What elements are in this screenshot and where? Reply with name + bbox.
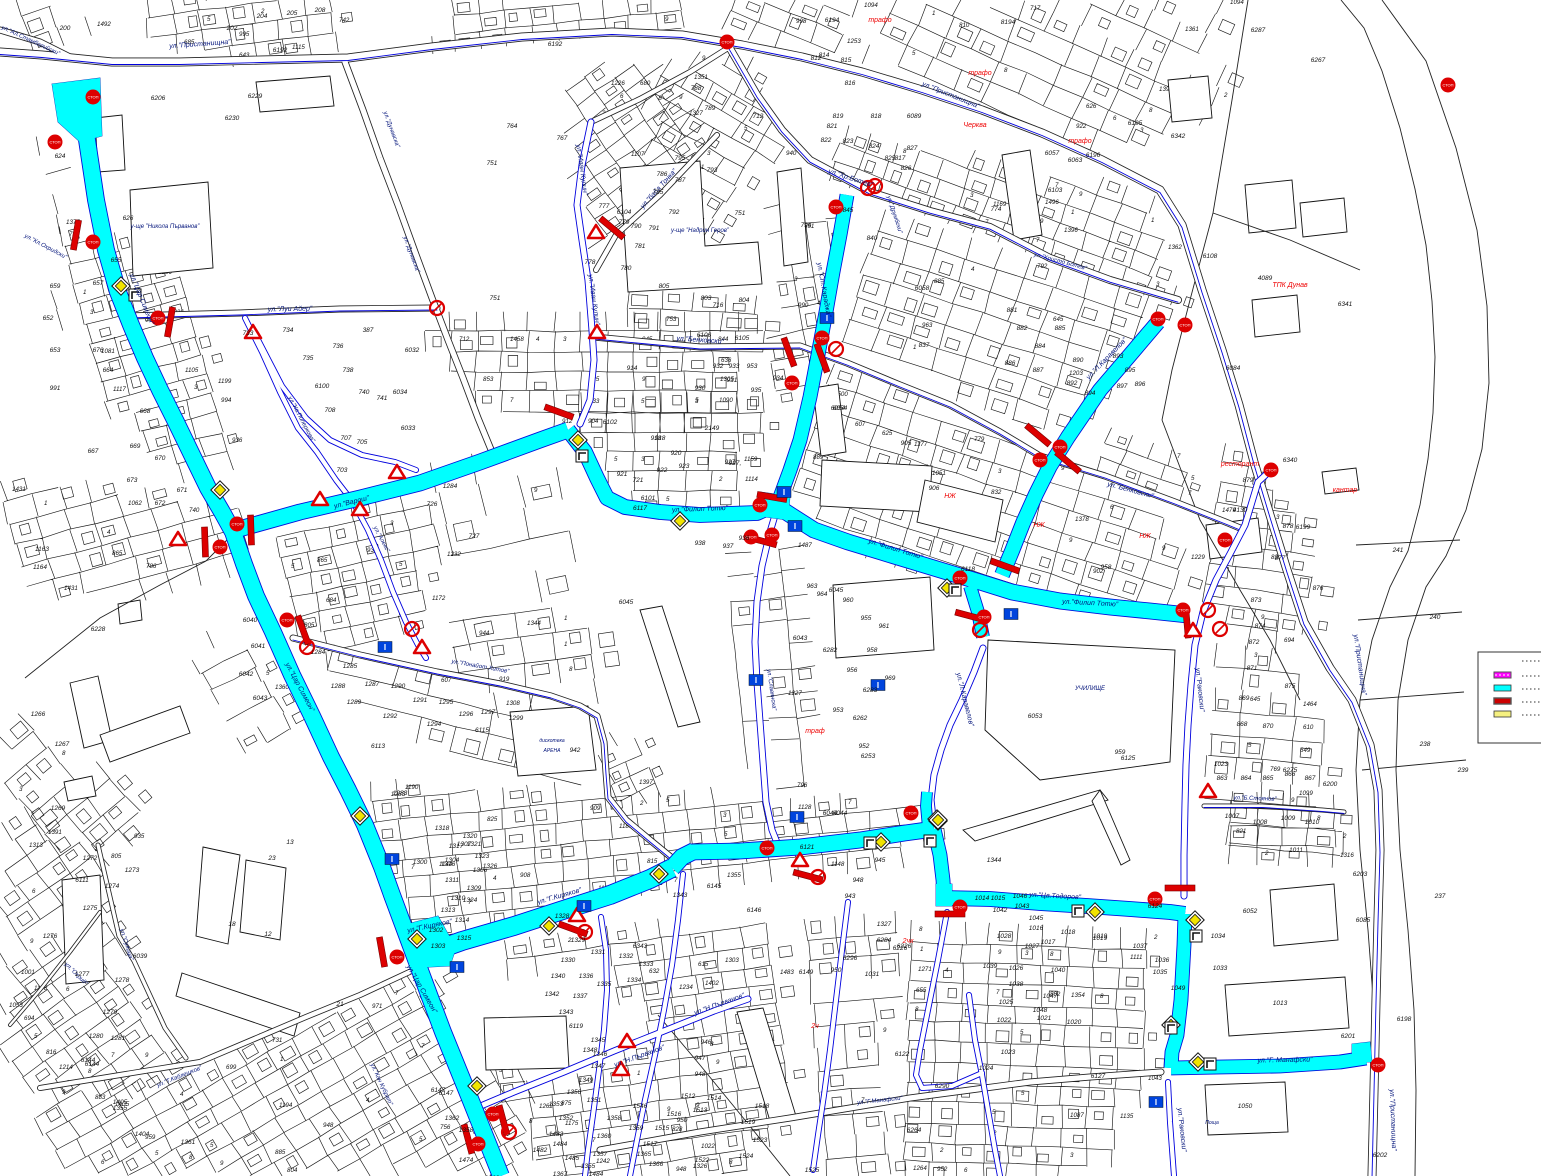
svg-text:741: 741 — [377, 395, 388, 402]
svg-text:3: 3 — [1276, 514, 1280, 521]
svg-text:879: 879 — [1243, 477, 1254, 484]
svg-text:5: 5 — [724, 831, 728, 838]
svg-text:1485: 1485 — [565, 1155, 580, 1162]
svg-text:1025: 1025 — [999, 999, 1014, 1006]
svg-text:1: 1 — [1151, 217, 1154, 224]
svg-text:1284: 1284 — [311, 649, 326, 656]
svg-text:874: 874 — [1255, 623, 1266, 630]
svg-text:1229: 1229 — [1191, 554, 1205, 561]
svg-text:653: 653 — [50, 347, 61, 354]
svg-text:738: 738 — [343, 367, 354, 374]
svg-text:1269: 1269 — [51, 805, 66, 812]
svg-text:СТОП: СТОП — [1442, 83, 1453, 88]
svg-text:673: 673 — [127, 477, 138, 484]
svg-text:СТОП: СТОП — [1152, 317, 1163, 322]
svg-text:1308: 1308 — [506, 700, 520, 707]
svg-text:1039: 1039 — [983, 963, 998, 970]
svg-text:1276: 1276 — [43, 933, 58, 940]
svg-text:923: 923 — [679, 463, 690, 470]
svg-text:дискотека: дискотека — [539, 738, 564, 744]
svg-text:930: 930 — [695, 385, 706, 392]
svg-text:1362: 1362 — [445, 1115, 460, 1122]
svg-text:699: 699 — [226, 1064, 237, 1071]
svg-text:934: 934 — [773, 375, 784, 382]
svg-text:796: 796 — [797, 782, 808, 789]
svg-text:8: 8 — [62, 750, 66, 757]
svg-text:751: 751 — [735, 210, 746, 217]
svg-text:1053: 1053 — [9, 1002, 23, 1009]
svg-text:8: 8 — [1004, 67, 1008, 74]
svg-text:886: 886 — [1005, 360, 1016, 367]
svg-text:1099: 1099 — [1299, 790, 1313, 797]
svg-text:5: 5 — [291, 563, 295, 570]
svg-text:387: 387 — [363, 327, 374, 334]
svg-text:5: 5 — [207, 16, 211, 23]
svg-text:817: 817 — [895, 155, 906, 162]
svg-text:8: 8 — [658, 95, 662, 102]
svg-text:1431: 1431 — [12, 486, 26, 493]
svg-text:1353: 1353 — [549, 1101, 564, 1108]
svg-text:6053: 6053 — [1028, 713, 1043, 720]
svg-text:СТОП: СТОП — [1149, 897, 1160, 902]
svg-text:1046: 1046 — [1013, 893, 1028, 900]
svg-text:6063: 6063 — [1068, 157, 1083, 164]
svg-text:6122: 6122 — [895, 1051, 910, 1058]
svg-text:1484: 1484 — [553, 1141, 568, 1148]
svg-text:774: 774 — [991, 206, 1002, 213]
svg-text:5: 5 — [666, 496, 670, 503]
svg-text:3: 3 — [641, 456, 645, 463]
svg-text:6104: 6104 — [617, 209, 632, 216]
svg-text:963: 963 — [922, 322, 933, 329]
svg-text:3: 3 — [194, 384, 198, 391]
svg-text:8: 8 — [529, 1118, 533, 1125]
svg-text:906: 906 — [929, 485, 940, 492]
svg-text:837: 837 — [919, 342, 930, 349]
svg-text:1242: 1242 — [596, 1158, 610, 1165]
svg-text:959: 959 — [1115, 749, 1126, 756]
svg-text:200: 200 — [59, 25, 71, 32]
svg-text:938: 938 — [695, 540, 706, 547]
svg-text:1327: 1327 — [689, 110, 703, 117]
svg-text:6296: 6296 — [843, 955, 858, 962]
svg-text:667: 667 — [88, 448, 99, 455]
svg-text:4130: 4130 — [1233, 507, 1248, 514]
svg-text:1361: 1361 — [1185, 26, 1199, 33]
svg-text:1311: 1311 — [445, 877, 459, 884]
svg-text:1367: 1367 — [553, 1171, 568, 1176]
svg-text:655: 655 — [111, 257, 122, 264]
svg-text:СТОП: СТОП — [49, 140, 60, 145]
svg-text:6085: 6085 — [1356, 917, 1371, 924]
svg-text:1431: 1431 — [64, 585, 78, 592]
svg-text:3: 3 — [970, 192, 974, 199]
svg-text:892: 892 — [1067, 380, 1078, 387]
svg-text:1135: 1135 — [1120, 1113, 1134, 1120]
svg-text:779: 779 — [619, 219, 630, 226]
svg-text:1340: 1340 — [551, 973, 566, 980]
svg-text:6057: 6057 — [1045, 150, 1060, 157]
svg-text:875: 875 — [1285, 683, 1296, 690]
svg-text:931: 931 — [727, 377, 738, 384]
svg-text:1281: 1281 — [111, 1035, 126, 1042]
svg-text:740: 740 — [359, 389, 370, 396]
svg-text:918: 918 — [651, 435, 662, 442]
svg-text:1051: 1051 — [932, 470, 946, 477]
svg-text:961: 961 — [879, 623, 890, 630]
svg-text:1294: 1294 — [427, 721, 442, 728]
svg-text:866: 866 — [1285, 771, 1296, 778]
svg-text:703: 703 — [337, 467, 348, 474]
svg-text:СТОП: СТОП — [87, 240, 98, 245]
svg-text:5: 5 — [641, 398, 645, 405]
svg-text:1397: 1397 — [639, 779, 653, 786]
svg-text:23: 23 — [267, 855, 276, 862]
svg-text:883: 883 — [95, 1094, 106, 1101]
svg-text:694: 694 — [24, 1015, 35, 1022]
svg-text:6089: 6089 — [907, 113, 922, 120]
svg-text:5: 5 — [1020, 1029, 1024, 1036]
svg-text:6034: 6034 — [393, 389, 408, 396]
svg-text:1313: 1313 — [441, 907, 456, 914]
svg-text:792: 792 — [669, 209, 680, 216]
svg-text:4: 4 — [107, 529, 111, 536]
svg-text:2: 2 — [718, 476, 723, 483]
svg-text:1024: 1024 — [979, 1065, 994, 1072]
svg-text:1280: 1280 — [89, 1033, 104, 1040]
svg-text:877: 877 — [1275, 555, 1286, 562]
svg-text:927: 927 — [725, 459, 736, 466]
svg-text:8194: 8194 — [1001, 19, 1016, 26]
svg-text:238: 238 — [1419, 741, 1431, 748]
svg-text:1107: 1107 — [631, 151, 645, 158]
svg-text:6145: 6145 — [707, 883, 722, 890]
svg-text:897: 897 — [1117, 383, 1128, 390]
svg-text:816: 816 — [46, 1049, 57, 1056]
svg-text:803: 803 — [701, 295, 712, 302]
svg-text:трафо: трафо — [1068, 138, 1091, 145]
svg-text:12: 12 — [264, 931, 272, 938]
svg-text:1015: 1015 — [991, 895, 1006, 902]
svg-text:1519: 1519 — [741, 1119, 756, 1126]
svg-text:1366: 1366 — [649, 1161, 664, 1168]
svg-text:СТОП: СТОП — [754, 503, 765, 508]
svg-text:998: 998 — [796, 18, 807, 25]
svg-text:1: 1 — [1071, 209, 1074, 216]
svg-text:1458: 1458 — [510, 336, 524, 343]
svg-text:I: I — [1155, 1098, 1157, 1107]
svg-text:1355: 1355 — [727, 872, 741, 879]
svg-text:9: 9 — [998, 949, 1002, 956]
svg-text:6054: 6054 — [833, 405, 848, 412]
svg-text:742: 742 — [339, 17, 350, 24]
svg-text:958: 958 — [1101, 564, 1112, 571]
svg-text:6264: 6264 — [907, 1127, 922, 1134]
svg-text:712: 712 — [753, 113, 764, 120]
svg-text:у-ще ”Никола Първанов”: у-ще ”Никола Първанов” — [130, 224, 201, 230]
svg-text:СТОП: СТОП — [786, 381, 797, 386]
svg-text:1018: 1018 — [1061, 929, 1076, 936]
svg-text:1515: 1515 — [655, 1125, 670, 1132]
svg-text:1047: 1047 — [1043, 993, 1058, 1000]
svg-text:6194: 6194 — [825, 17, 840, 24]
svg-text:1484: 1484 — [589, 1171, 604, 1176]
svg-text:1365: 1365 — [637, 1151, 652, 1158]
svg-text:7: 7 — [510, 397, 514, 404]
svg-text:936: 936 — [232, 437, 243, 444]
svg-text:1359: 1359 — [629, 1125, 644, 1132]
svg-text:5: 5 — [155, 1150, 159, 1157]
svg-text:5: 5 — [1021, 1090, 1025, 1097]
svg-text:1087: 1087 — [1070, 1112, 1084, 1119]
svg-text:944: 944 — [479, 630, 490, 637]
svg-text:1318: 1318 — [435, 825, 450, 832]
svg-text:712: 712 — [459, 336, 470, 343]
svg-text:1273: 1273 — [125, 867, 140, 874]
svg-text:1048: 1048 — [1033, 1007, 1048, 1014]
svg-text:684: 684 — [326, 597, 337, 604]
svg-text:8: 8 — [1100, 993, 1104, 1000]
svg-text:905: 905 — [901, 440, 912, 447]
svg-text:I: I — [384, 643, 386, 652]
svg-text:778: 778 — [585, 259, 596, 266]
svg-text:731: 731 — [272, 1037, 282, 1044]
svg-text:6342: 6342 — [1171, 133, 1186, 140]
svg-text:Черква: Черква — [963, 122, 986, 129]
svg-text:6203: 6203 — [1353, 871, 1368, 878]
svg-text:8: 8 — [919, 926, 923, 933]
svg-text:734: 734 — [283, 327, 294, 334]
svg-text:659: 659 — [50, 283, 61, 290]
svg-text:1404: 1404 — [135, 1131, 150, 1138]
svg-text:СТОП: СТОП — [766, 533, 777, 538]
svg-text:1164: 1164 — [33, 564, 47, 571]
svg-text:5: 5 — [210, 1142, 214, 1149]
svg-text:716: 716 — [713, 302, 724, 309]
svg-text:I: I — [391, 855, 393, 864]
svg-text:1315: 1315 — [457, 935, 472, 942]
svg-text:814: 814 — [819, 52, 830, 59]
svg-text:878: 878 — [1283, 523, 1294, 530]
svg-text:21: 21 — [335, 1001, 344, 1008]
svg-text:1343: 1343 — [673, 892, 688, 899]
svg-text:1267: 1267 — [55, 741, 70, 748]
svg-text:885: 885 — [934, 278, 945, 285]
svg-text:1232: 1232 — [447, 551, 461, 558]
svg-text:694: 694 — [1284, 637, 1295, 644]
svg-text:1329: 1329 — [571, 937, 586, 944]
svg-text:6042: 6042 — [239, 671, 254, 678]
svg-text:6192: 6192 — [273, 47, 288, 54]
svg-text:4089: 4089 — [1258, 275, 1273, 282]
svg-text:9: 9 — [1162, 545, 1166, 552]
svg-text:881: 881 — [1007, 307, 1018, 314]
svg-text:777: 777 — [599, 203, 610, 210]
svg-text:6: 6 — [964, 1167, 968, 1174]
svg-text:6105: 6105 — [735, 335, 750, 342]
svg-text:I: I — [1010, 610, 1012, 619]
svg-text:751: 751 — [487, 160, 498, 167]
svg-text:1177: 1177 — [914, 441, 928, 448]
svg-text:6119: 6119 — [569, 1023, 583, 1030]
svg-text:1303: 1303 — [725, 957, 739, 964]
svg-text:6117: 6117 — [633, 505, 647, 512]
svg-text:1045: 1045 — [1029, 915, 1044, 922]
svg-text:827: 827 — [907, 145, 918, 152]
svg-text:936: 936 — [739, 535, 750, 542]
svg-text:1464: 1464 — [1303, 701, 1317, 708]
svg-text:ул.”Луи Айер”: ул.”Луи Айер” — [267, 305, 313, 314]
svg-text:727: 727 — [469, 533, 480, 540]
svg-text:3: 3 — [563, 336, 567, 343]
svg-text:943: 943 — [845, 893, 856, 900]
svg-text:1360: 1360 — [597, 1133, 612, 1140]
svg-text:1355: 1355 — [581, 1163, 596, 1170]
svg-text:607: 607 — [855, 421, 866, 428]
svg-text:914: 914 — [627, 365, 638, 372]
svg-text:769: 769 — [1270, 766, 1281, 773]
svg-text:1336: 1336 — [579, 973, 594, 980]
svg-text:СТОП: СТОП — [231, 522, 242, 527]
svg-text:1001: 1001 — [21, 969, 35, 976]
svg-text:1333: 1333 — [639, 961, 654, 968]
svg-text:1321: 1321 — [467, 841, 482, 848]
svg-text:4: 4 — [945, 967, 949, 974]
svg-text:6262: 6262 — [853, 715, 868, 722]
svg-text:942: 942 — [570, 747, 581, 754]
svg-text:1026: 1026 — [1009, 965, 1024, 972]
svg-text:1094: 1094 — [864, 2, 878, 9]
svg-text:1351: 1351 — [694, 74, 708, 81]
svg-text:8: 8 — [1050, 951, 1054, 958]
svg-text:657: 657 — [93, 280, 104, 287]
svg-text:1317: 1317 — [449, 843, 464, 850]
svg-text:624: 624 — [55, 153, 66, 160]
svg-text:трафо: трафо — [968, 70, 991, 77]
svg-text:893: 893 — [1113, 353, 1124, 360]
svg-text:1337: 1337 — [573, 993, 588, 1000]
svg-text:6340: 6340 — [1283, 457, 1298, 464]
svg-text:1: 1 — [83, 289, 86, 296]
svg-text:953: 953 — [747, 363, 758, 370]
svg-text:870: 870 — [1263, 723, 1274, 730]
svg-text:865: 865 — [317, 557, 328, 564]
svg-text:1128: 1128 — [798, 804, 812, 811]
svg-text:626: 626 — [1086, 103, 1097, 110]
svg-text:885: 885 — [1055, 325, 1066, 332]
svg-text:9: 9 — [665, 16, 669, 23]
svg-text:205: 205 — [286, 10, 298, 17]
svg-text:1347: 1347 — [591, 1063, 606, 1070]
svg-text:824: 824 — [869, 143, 880, 150]
svg-text:I: I — [783, 488, 785, 497]
svg-text:1402: 1402 — [705, 980, 719, 987]
svg-text:6103: 6103 — [1048, 187, 1063, 194]
svg-text:708: 708 — [325, 407, 336, 414]
svg-text:1020: 1020 — [1067, 1019, 1082, 1026]
svg-text:6106: 6106 — [697, 332, 712, 339]
svg-text:832: 832 — [991, 489, 1002, 496]
svg-text:6124: 6124 — [1148, 903, 1163, 910]
svg-text:I: I — [794, 522, 796, 531]
svg-text:I: I — [796, 813, 798, 822]
svg-text:1033: 1033 — [1213, 965, 1228, 972]
svg-text:652: 652 — [43, 315, 54, 322]
svg-text:3: 3 — [90, 309, 94, 316]
svg-text:6040: 6040 — [243, 617, 258, 624]
svg-text:863: 863 — [1217, 775, 1228, 782]
svg-text:3: 3 — [707, 150, 711, 157]
svg-text:668: 668 — [140, 408, 151, 415]
svg-text:6121: 6121 — [800, 844, 815, 851]
svg-text:1284: 1284 — [443, 483, 458, 490]
svg-text:6039: 6039 — [133, 953, 148, 960]
svg-text:933: 933 — [729, 363, 740, 370]
svg-text:4: 4 — [536, 336, 540, 343]
svg-text:790: 790 — [631, 223, 642, 230]
svg-text:885: 885 — [275, 1149, 286, 1156]
svg-text:6202: 6202 — [1373, 1152, 1388, 1159]
svg-text:1264: 1264 — [913, 1165, 927, 1172]
svg-text:1361: 1361 — [181, 1139, 196, 1146]
svg-text:705: 705 — [357, 439, 368, 446]
svg-text:СТОП: СТОП — [1177, 608, 1188, 613]
svg-text:1344: 1344 — [987, 857, 1002, 864]
svg-text:645: 645 — [1053, 316, 1064, 323]
svg-text:786: 786 — [146, 563, 157, 570]
svg-text:940: 940 — [786, 150, 797, 157]
svg-text:1226: 1226 — [611, 80, 625, 87]
svg-text:9: 9 — [30, 938, 34, 945]
svg-text:6228: 6228 — [91, 626, 106, 633]
svg-text:669: 669 — [130, 443, 141, 450]
svg-text:868: 868 — [1237, 721, 1248, 728]
svg-text:6044: 6044 — [833, 810, 848, 817]
svg-text:6195: 6195 — [1128, 120, 1143, 127]
svg-text:6226: 6226 — [893, 945, 908, 952]
svg-text:945: 945 — [875, 857, 886, 864]
svg-text:4: 4 — [366, 1097, 370, 1104]
svg-text:853: 853 — [483, 376, 494, 383]
svg-text:1296: 1296 — [459, 711, 474, 718]
svg-text:3: 3 — [695, 398, 699, 405]
svg-text:1313: 1313 — [29, 842, 43, 849]
svg-text:789: 789 — [705, 105, 716, 112]
svg-text:795: 795 — [675, 155, 686, 162]
svg-text:1275: 1275 — [83, 905, 98, 912]
svg-text:1546: 1546 — [633, 1103, 648, 1110]
svg-text:СТОП: СТОП — [761, 846, 772, 851]
svg-text:5: 5 — [34, 1033, 38, 1040]
svg-text:1299: 1299 — [509, 715, 524, 722]
svg-text:6041: 6041 — [251, 643, 266, 650]
svg-text:9: 9 — [883, 1027, 887, 1034]
svg-text:1524: 1524 — [739, 1153, 754, 1160]
svg-text:6052: 6052 — [1243, 908, 1258, 915]
svg-text:4: 4 — [493, 875, 497, 882]
svg-text:735: 735 — [303, 355, 314, 362]
svg-text:1513: 1513 — [693, 1107, 708, 1114]
svg-text:894: 894 — [1085, 390, 1096, 397]
svg-text:237: 237 — [1434, 893, 1446, 900]
svg-text:948: 948 — [695, 1071, 706, 1078]
svg-text:952: 952 — [859, 743, 870, 750]
svg-text:4: 4 — [180, 1091, 184, 1098]
svg-text:6149: 6149 — [799, 969, 814, 976]
svg-text:2: 2 — [1223, 92, 1228, 99]
svg-text:СТОП: СТОП — [905, 811, 916, 816]
svg-text:3: 3 — [723, 812, 727, 819]
